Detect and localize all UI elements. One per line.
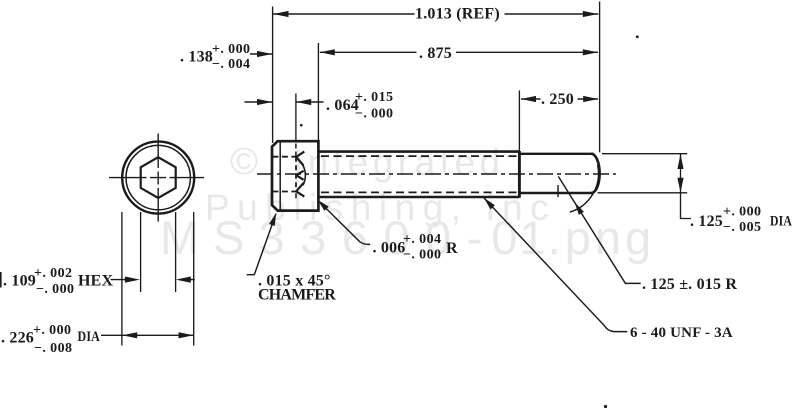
svg-text:. 875: . 875: [419, 45, 452, 62]
svg-text:. 226: . 226: [1, 330, 34, 347]
svg-text:+. 004: +. 004: [403, 232, 441, 247]
svg-text:DIA: DIA: [770, 214, 792, 230]
svg-text:DIA: DIA: [78, 329, 101, 345]
svg-text:. 138: . 138: [180, 49, 213, 66]
svg-text:−. 008: −. 008: [34, 341, 72, 356]
svg-text:+. 000: +. 000: [723, 205, 761, 220]
svg-text:−. 000: −. 000: [36, 282, 74, 297]
svg-text:. 250: . 250: [541, 91, 574, 108]
svg-text:−. 000: −. 000: [355, 107, 393, 122]
svg-text:1.013 (REF): 1.013 (REF): [415, 6, 500, 23]
svg-text:+. 015: +. 015: [355, 90, 393, 105]
svg-text:R: R: [446, 240, 458, 257]
svg-text:+. 000: +. 000: [212, 42, 250, 57]
svg-text:. 125 ±. 015 R: . 125 ±. 015 R: [642, 276, 737, 293]
svg-text:−. 004: −. 004: [212, 57, 250, 72]
svg-text:+. 000: +. 000: [33, 323, 71, 338]
svg-text:6 - 40 UNF - 3A: 6 - 40 UNF - 3A: [630, 325, 733, 341]
svg-text:. 006: . 006: [373, 240, 406, 257]
svg-text:. 125: . 125: [690, 213, 723, 230]
svg-text:HEX: HEX: [78, 273, 114, 290]
svg-text:. 109: . 109: [3, 273, 36, 290]
svg-text:CHAMFER: CHAMFER: [258, 287, 336, 304]
svg-text:+. 002: +. 002: [34, 266, 72, 281]
svg-text:−. 005: −. 005: [723, 220, 761, 235]
svg-text:−. 000: −. 000: [403, 248, 441, 263]
